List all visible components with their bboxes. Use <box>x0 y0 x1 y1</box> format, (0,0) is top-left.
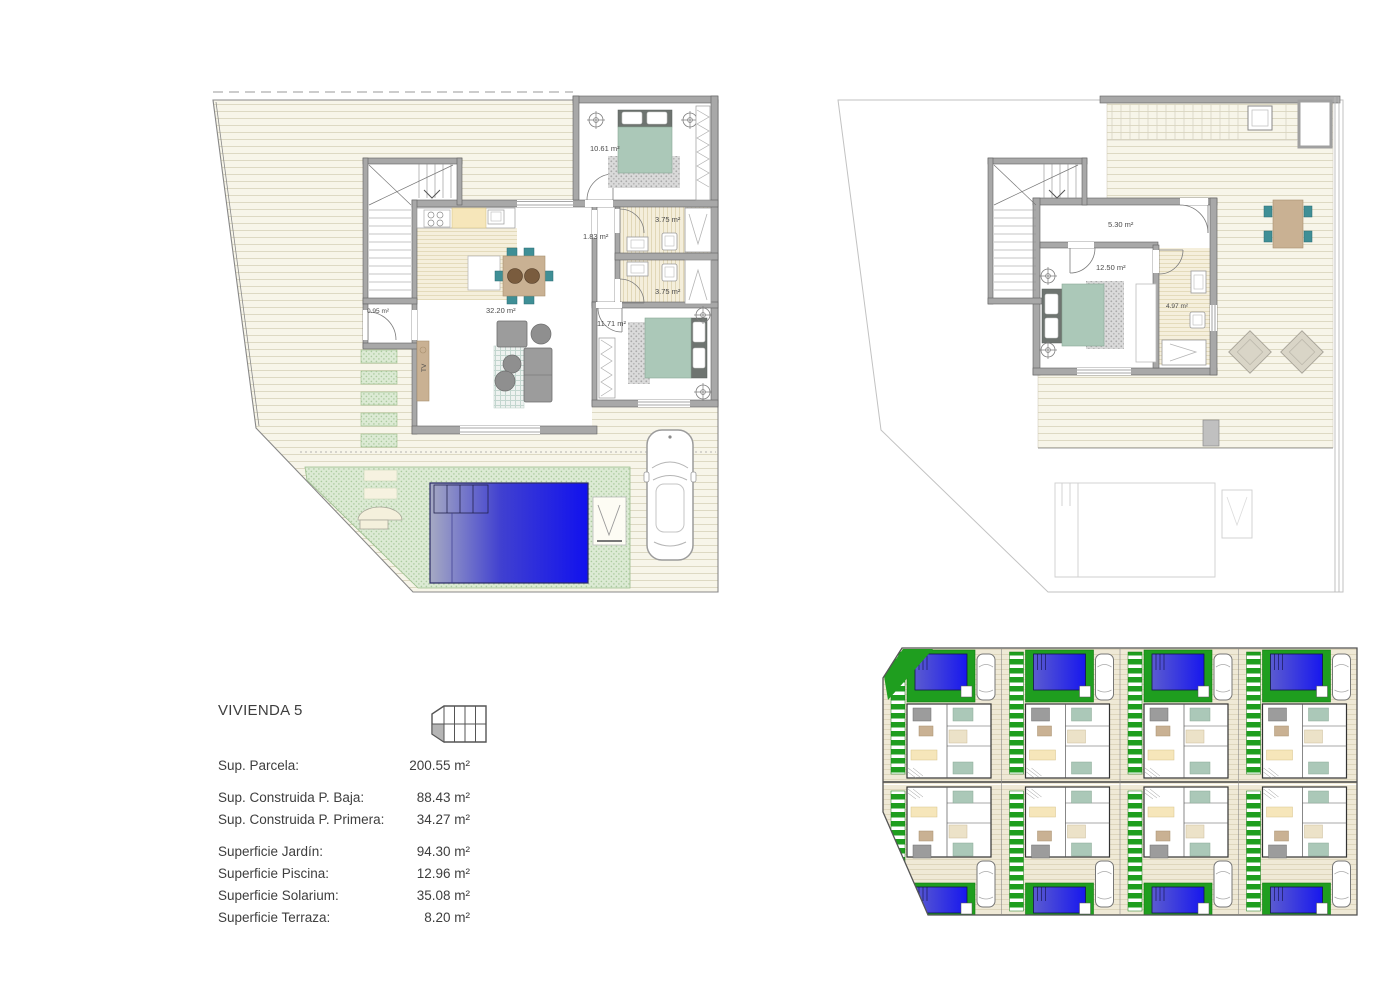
first-floor-plan: 5.30 m² 12.50 m² 4.97 m² <box>838 96 1343 592</box>
room-label-bath2: 3.75 m² <box>655 287 681 296</box>
key-plan-icon <box>430 704 488 746</box>
site-plan <box>883 648 1357 917</box>
architectural-plan-sheet: TV <box>0 0 1400 989</box>
stepping-stones <box>361 350 397 499</box>
room-label-bath-ff: 4.97 m² <box>1166 303 1189 310</box>
room-label-bedroom2: 11.71 m² <box>597 319 627 328</box>
dining-table-icon <box>495 248 553 304</box>
room-label-closet: 0.95 m² <box>367 308 390 315</box>
info-row-parcela: Sup. Parcela: 200.55 m² <box>218 755 470 777</box>
pool <box>430 483 588 583</box>
room-label-hall-ff: 5.30 m² <box>1108 220 1134 229</box>
info-row-construida-primera: Sup. Construida P. Primera: 34.27 m² <box>218 809 470 831</box>
room-label-hall: 1.83 m² <box>583 232 609 241</box>
tv-unit-icon: TV <box>417 341 429 401</box>
info-row-construida-baja: Sup. Construida P. Baja: 88.43 m² <box>218 787 470 809</box>
skylight-icon <box>1248 106 1272 130</box>
outdoor-shower-icon <box>593 497 626 545</box>
floorplan-canvas: TV <box>0 0 1400 989</box>
ground-floor-plan: TV <box>213 92 718 592</box>
room-label-bath1: 3.75 m² <box>655 215 681 224</box>
info-row-jardin: Superficie Jardín: 94.30 m² <box>218 841 470 863</box>
room-label-living: 32.20 m² <box>486 306 516 315</box>
tv-label: TV <box>421 363 428 372</box>
rooftop-box <box>1299 101 1331 147</box>
info-row-piscina: Superficie Piscina: 12.96 m² <box>218 863 470 885</box>
highlighted-unit-cell <box>432 724 444 742</box>
sofa-set-icon <box>494 321 552 408</box>
info-row-terraza: Superficie Terraza: 8.20 m² <box>218 907 470 929</box>
info-row-solarium: Superficie Solarium: 35.08 m² <box>218 885 470 907</box>
car-icon <box>644 430 696 560</box>
room-label-bedroom-ff: 12.50 m² <box>1096 263 1126 272</box>
room-label-bedroom1: 10.61 m² <box>590 144 620 153</box>
